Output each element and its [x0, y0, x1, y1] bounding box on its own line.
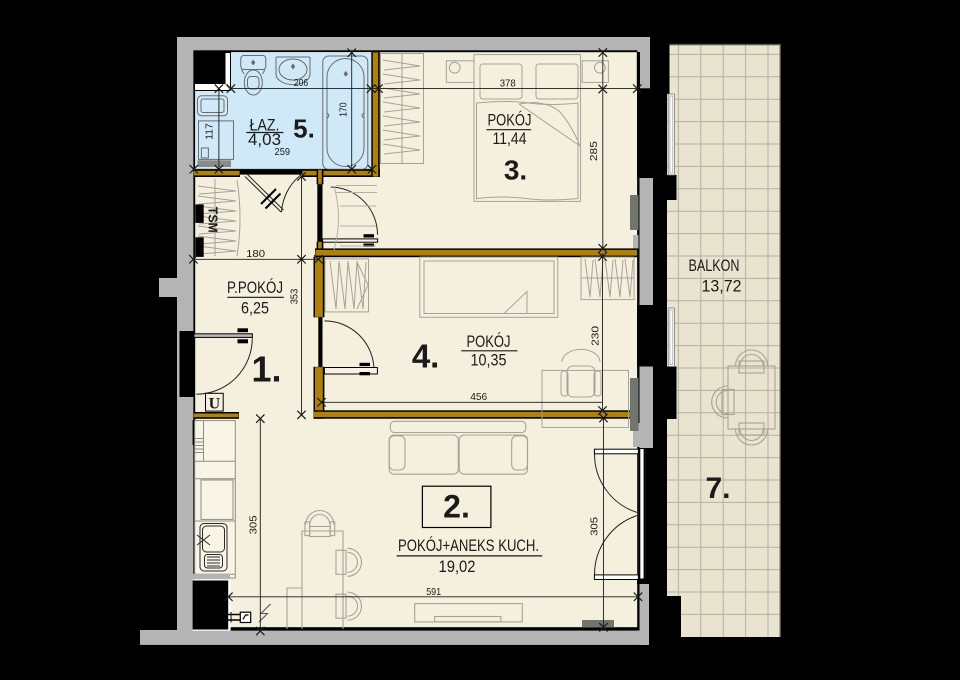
svg-text:19,02: 19,02 — [439, 557, 476, 576]
svg-text:353: 353 — [288, 289, 300, 305]
svg-text:170: 170 — [338, 102, 350, 117]
svg-text:285: 285 — [588, 141, 600, 161]
svg-text:POKÓJ: POKÓJ — [467, 332, 511, 351]
svg-text:4.: 4. — [412, 338, 440, 375]
svg-text:10,35: 10,35 — [471, 351, 507, 370]
svg-text:591: 591 — [426, 586, 441, 598]
svg-text:P.POKÓJ: P.POKÓJ — [227, 278, 283, 297]
svg-text:456: 456 — [470, 391, 487, 403]
svg-text:378: 378 — [500, 78, 516, 90]
svg-text:6,25: 6,25 — [241, 299, 269, 318]
svg-text:230: 230 — [589, 326, 601, 346]
svg-text:305: 305 — [588, 517, 600, 536]
svg-text:TSM: TSM — [206, 207, 221, 233]
svg-text:POKÓJ+ANEKS KUCH.: POKÓJ+ANEKS KUCH. — [398, 536, 539, 555]
svg-text:BALKON: BALKON — [689, 256, 740, 275]
svg-text:5.: 5. — [293, 114, 315, 144]
svg-text:2.: 2. — [443, 489, 470, 525]
svg-text:1.: 1. — [251, 349, 281, 390]
svg-text:U: U — [209, 395, 221, 412]
svg-text:206: 206 — [294, 77, 309, 89]
svg-text:7.: 7. — [705, 472, 730, 505]
svg-text:305: 305 — [247, 515, 259, 534]
svg-text:11,44: 11,44 — [493, 129, 527, 148]
svg-text:4,03: 4,03 — [248, 130, 281, 149]
svg-text:180: 180 — [246, 248, 265, 260]
svg-text:3.: 3. — [504, 155, 527, 186]
svg-text:117: 117 — [204, 123, 216, 140]
svg-text:13,72: 13,72 — [702, 277, 742, 296]
svg-text:POKÓJ: POKÓJ — [488, 111, 532, 130]
